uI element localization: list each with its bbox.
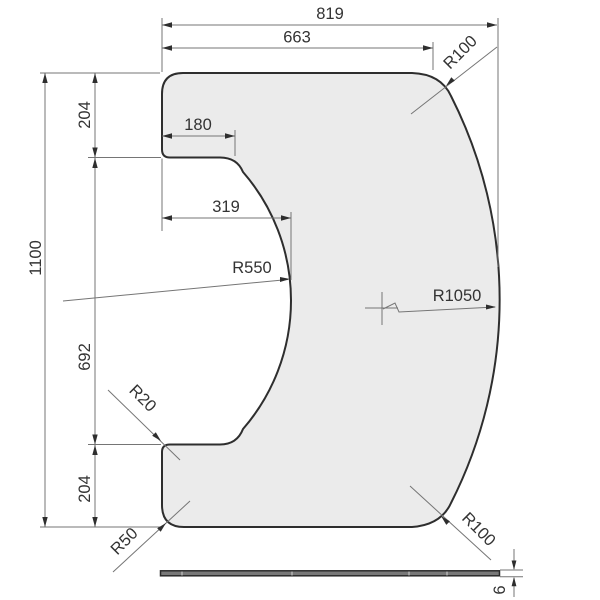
- dim-thickness-label: 6: [491, 585, 509, 594]
- dim-692-label: 692: [76, 343, 94, 371]
- dim-1100-label: 1100: [27, 240, 45, 275]
- dim-r20-label: R20: [125, 381, 159, 415]
- arrowhead: [92, 435, 97, 445]
- dim-663-label: 663: [283, 29, 311, 47]
- arrowhead: [42, 73, 47, 83]
- arrowhead: [423, 45, 433, 50]
- dim-middle-section-height: 692: [76, 158, 98, 445]
- arrowhead: [92, 517, 97, 527]
- arrowhead: [42, 517, 47, 527]
- dim-cutout-radius: R550: [63, 259, 290, 301]
- dim-r100-bottom-label: R100: [458, 509, 499, 550]
- dim-r50-label: R50: [107, 524, 141, 558]
- dim-204-top-label: 204: [76, 101, 94, 129]
- technical-drawing-canvas: 819 663 180 319 204 692 20: [0, 0, 600, 600]
- dim-top-section-height: 204: [76, 73, 98, 158]
- dim-bottom-section-height: 204: [76, 445, 98, 528]
- dim-upper-width: 663: [162, 29, 433, 51]
- leader-line: [63, 280, 288, 302]
- dim-overall-width: 819: [162, 5, 497, 28]
- dim-r1050-label: R1050: [433, 287, 482, 305]
- arrowhead: [512, 577, 517, 587]
- arrowhead: [92, 148, 97, 158]
- dim-r100-top-label: R100: [440, 32, 481, 73]
- arrowhead: [280, 277, 290, 282]
- drawing-page: 819 663 180 319 204 692 20: [0, 0, 600, 600]
- arrowhead: [162, 215, 172, 220]
- arrowhead: [441, 516, 450, 525]
- arrowhead: [92, 158, 97, 168]
- arrowhead: [152, 432, 161, 441]
- arrowhead: [446, 77, 455, 86]
- dim-819-label: 819: [316, 5, 344, 23]
- dim-180-label: 180: [184, 116, 212, 134]
- dim-r550-label: R550: [232, 259, 271, 277]
- arrowhead: [92, 445, 97, 455]
- dim-319-label: 319: [212, 198, 240, 216]
- arrowhead: [162, 22, 172, 27]
- arrowhead: [487, 22, 497, 27]
- side-view-strip: [161, 571, 500, 576]
- arrowhead: [512, 561, 517, 571]
- dim-overall-height: 1100: [27, 73, 48, 527]
- arrowhead: [92, 73, 97, 83]
- dim-204-bottom-label: 204: [76, 475, 94, 503]
- arrowhead: [162, 45, 172, 50]
- panel-side-view: [161, 571, 500, 576]
